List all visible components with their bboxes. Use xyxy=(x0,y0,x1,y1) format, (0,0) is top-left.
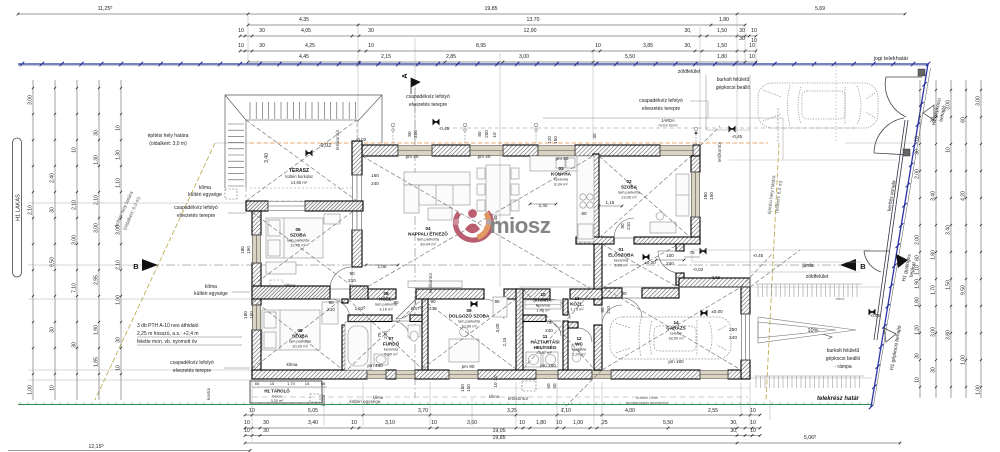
svg-text:pm 40: pm 40 xyxy=(478,154,491,159)
svg-text:elszó: elszó xyxy=(836,297,845,301)
svg-text:miosz: miosz xyxy=(490,213,551,238)
svg-text:240: 240 xyxy=(666,261,674,266)
svg-text:10: 10 xyxy=(915,377,921,383)
svg-text:160: 160 xyxy=(371,173,379,178)
svg-text:2,10: 2,10 xyxy=(94,195,100,205)
svg-text:tetőkontúr: tetőkontúr xyxy=(428,272,433,293)
svg-text:zöldfelület: zöldfelület xyxy=(678,69,701,75)
svg-text:3,10: 3,10 xyxy=(385,420,395,426)
svg-text:1,85: 1,85 xyxy=(94,357,100,367)
svg-text:60: 60 xyxy=(581,211,587,216)
svg-text:10,20 m²: 10,20 m² xyxy=(292,344,308,349)
svg-text:240: 240 xyxy=(383,331,388,339)
svg-text:180: 180 xyxy=(240,246,245,254)
svg-text:3,16 m²: 3,16 m² xyxy=(379,307,393,312)
svg-text:2,15: 2,15 xyxy=(381,54,391,60)
svg-text:210: 210 xyxy=(606,306,611,314)
svg-text:90: 90 xyxy=(600,307,605,313)
svg-text:10: 10 xyxy=(750,428,756,434)
svg-text:210: 210 xyxy=(327,307,335,312)
svg-text:B: B xyxy=(860,262,866,271)
svg-text:12: 12 xyxy=(576,336,582,341)
svg-text:60: 60 xyxy=(546,383,551,389)
svg-text:5,69: 5,69 xyxy=(815,6,825,12)
svg-text:GARÁZS: GARÁZS xyxy=(666,324,685,330)
svg-text:3,85: 3,85 xyxy=(643,43,653,49)
svg-text:60: 60 xyxy=(552,383,557,389)
svg-text:csapadékvíz lefolyó: csapadékvíz lefolyó xyxy=(170,360,214,366)
svg-text:-0,02: -0,02 xyxy=(319,143,332,149)
svg-text:3,40: 3,40 xyxy=(308,420,318,426)
svg-text:gépkocsi beálló: gépkocsi beálló xyxy=(826,356,861,362)
svg-text:1,70: 1,70 xyxy=(287,381,296,386)
svg-text:4,05: 4,05 xyxy=(301,28,311,34)
svg-text:3,00: 3,00 xyxy=(72,235,78,245)
svg-text:2,15: 2,15 xyxy=(502,337,507,346)
svg-text:KÖZL.: KÖZL. xyxy=(379,295,393,301)
svg-text:150: 150 xyxy=(249,311,254,319)
svg-text:30,: 30, xyxy=(684,28,691,34)
svg-text:H1 TÁROLÓ: H1 TÁROLÓ xyxy=(264,389,290,394)
svg-text:2,40: 2,40 xyxy=(50,173,56,183)
svg-text:-0,02: -0,02 xyxy=(356,137,367,142)
svg-text:10: 10 xyxy=(244,428,250,434)
svg-text:3,00: 3,00 xyxy=(519,54,529,60)
svg-text:30: 30 xyxy=(263,420,269,426)
svg-text:elvezetés terepre: elvezetés terepre xyxy=(173,368,212,374)
svg-text:15: 15 xyxy=(305,381,310,386)
svg-text:3,00: 3,00 xyxy=(94,223,100,233)
svg-text:KÖZL.: KÖZL. xyxy=(570,300,584,306)
svg-text:2,10: 2,10 xyxy=(28,205,34,215)
svg-text:12,75 m²: 12,75 m² xyxy=(290,243,306,248)
svg-text:30,: 30, xyxy=(684,43,691,49)
svg-text:1,20: 1,20 xyxy=(915,325,921,335)
svg-text:150: 150 xyxy=(553,136,558,144)
svg-text:30: 30 xyxy=(915,149,921,155)
svg-text:180: 180 xyxy=(703,192,708,200)
svg-text:4,25: 4,25 xyxy=(305,43,315,49)
svg-text:10: 10 xyxy=(368,43,374,49)
svg-text:10: 10 xyxy=(751,28,757,34)
svg-text:csapadékvíz lefolyó: csapadékvíz lefolyó xyxy=(639,98,683,104)
svg-text:pm 90: pm 90 xyxy=(462,364,475,369)
svg-text:JÁRDA: JÁRDA xyxy=(661,118,675,123)
svg-text:építési hely határa: építési hely határa xyxy=(148,133,189,139)
svg-text:2,95: 2,95 xyxy=(94,275,100,285)
svg-text:9,50: 9,50 xyxy=(961,285,967,295)
svg-text:30: 30 xyxy=(50,327,56,333)
svg-text:80: 80 xyxy=(407,131,412,137)
svg-text:10: 10 xyxy=(493,382,498,388)
svg-text:3,40: 3,40 xyxy=(264,153,270,163)
svg-text:90: 90 xyxy=(430,299,436,304)
svg-text:beton: beton xyxy=(272,395,282,399)
svg-text:10: 10 xyxy=(750,408,756,414)
svg-text:4,00: 4,00 xyxy=(625,408,635,414)
svg-text:19,85: 19,85 xyxy=(485,6,498,12)
svg-text:1,80: 1,80 xyxy=(536,420,546,426)
svg-text:A: A xyxy=(402,73,409,78)
svg-text:DOLGOZÓ SZOBA: DOLGOZÓ SZOBA xyxy=(449,311,490,318)
svg-text:±0,00: ±0,00 xyxy=(711,309,723,314)
svg-text:3,00: 3,00 xyxy=(116,225,122,235)
svg-text:(oldalkert: 3,0 m): (oldalkert: 3,0 m) xyxy=(149,141,187,147)
svg-text:240: 240 xyxy=(545,328,553,333)
svg-text:10,80 m²: 10,80 m² xyxy=(461,324,477,329)
svg-text:100: 100 xyxy=(666,253,674,258)
svg-text:07: 07 xyxy=(388,336,394,341)
svg-text:250: 250 xyxy=(729,327,737,333)
svg-text:11,255: 11,255 xyxy=(98,5,113,12)
svg-text:10: 10 xyxy=(50,385,56,391)
svg-text:kontúr: kontúr xyxy=(321,394,326,406)
svg-text:1,80: 1,80 xyxy=(915,297,921,307)
svg-text:19,85: 19,85 xyxy=(493,435,506,441)
svg-text:klíma: klíma xyxy=(489,394,500,399)
svg-text:30: 30 xyxy=(915,353,921,359)
svg-text:180: 180 xyxy=(243,311,248,319)
svg-text:60: 60 xyxy=(961,117,967,123)
svg-text:30,: 30, xyxy=(730,420,737,426)
svg-text:1,00: 1,00 xyxy=(976,385,982,395)
svg-text:tetőkontúr: tetőkontúr xyxy=(335,129,340,150)
svg-text:1,30: 1,30 xyxy=(94,155,100,165)
svg-text:150: 150 xyxy=(246,246,251,254)
svg-text:H1 LAKÁS: H1 LAKÁS xyxy=(15,194,22,221)
svg-text:10: 10 xyxy=(72,147,78,153)
svg-text:150: 150 xyxy=(466,384,471,392)
svg-text:1,30: 1,30 xyxy=(116,150,122,160)
svg-text:90: 90 xyxy=(349,271,355,276)
svg-text:klíma: klíma xyxy=(199,185,211,191)
svg-text:14,65 m²: 14,65 m² xyxy=(291,180,308,185)
svg-text:1,90: 1,90 xyxy=(94,325,100,335)
svg-text:06: 06 xyxy=(297,328,303,333)
svg-text:90: 90 xyxy=(494,299,500,304)
svg-text:- rámpa: - rámpa xyxy=(834,364,851,370)
svg-text:ELŐSZOBA: ELŐSZOBA xyxy=(608,251,634,257)
svg-text:3,00: 3,00 xyxy=(28,95,34,105)
svg-text:12,90: 12,90 xyxy=(524,28,537,34)
svg-text:1,15: 1,15 xyxy=(606,200,615,205)
svg-text:1,00: 1,00 xyxy=(28,385,34,395)
svg-text:150: 150 xyxy=(709,192,714,200)
svg-text:90: 90 xyxy=(393,300,399,305)
svg-text:30: 30 xyxy=(621,291,627,296)
svg-text:12,155: 12,155 xyxy=(88,443,103,450)
svg-text:kültéri egysége: kültéri egysége xyxy=(194,291,228,297)
svg-text:3,70: 3,70 xyxy=(418,408,428,414)
svg-text:30: 30 xyxy=(368,28,374,34)
svg-text:30: 30 xyxy=(739,28,745,34)
svg-text:1,40 m²: 1,40 m² xyxy=(536,308,550,313)
svg-text:10: 10 xyxy=(431,420,437,426)
svg-text:NAPPALI ÉTKEZŐ: NAPPALI ÉTKEZŐ xyxy=(408,229,448,236)
svg-text:75: 75 xyxy=(377,332,382,338)
svg-text:180: 180 xyxy=(460,384,465,392)
svg-text:6,80 m²: 6,80 m² xyxy=(384,352,398,357)
svg-text:09: 09 xyxy=(466,308,472,313)
svg-text:10: 10 xyxy=(351,420,357,426)
svg-text:3,00: 3,00 xyxy=(976,96,982,106)
svg-text:4,45: 4,45 xyxy=(299,54,309,60)
svg-text:HELYISÉG: HELYISÉG xyxy=(534,343,557,350)
svg-text:kontúr: kontúr xyxy=(206,387,211,400)
svg-text:2,25 m hosszú, a.s.: +2,4 m: 2,25 m hosszú, a.s.: +2,4 m xyxy=(137,331,199,337)
svg-text:8,95: 8,95 xyxy=(476,43,486,49)
svg-text:240: 240 xyxy=(371,181,379,186)
svg-text:1,80: 1,80 xyxy=(717,54,727,60)
svg-text:elvezetés terepre: elvezetés terepre xyxy=(177,213,216,219)
svg-text:1,00: 1,00 xyxy=(961,355,967,365)
svg-text:11: 11 xyxy=(543,334,548,339)
svg-text:1,70: 1,70 xyxy=(931,285,937,295)
svg-text:3,00: 3,00 xyxy=(495,323,500,332)
svg-text:10: 10 xyxy=(750,420,756,426)
svg-text:1,50: 1,50 xyxy=(946,280,952,290)
svg-text:10: 10 xyxy=(116,125,122,131)
svg-text:1,50: 1,50 xyxy=(717,28,727,34)
svg-text:klíma: klíma xyxy=(205,284,217,290)
svg-text:1,80: 1,80 xyxy=(931,250,937,260)
svg-text:19,05: 19,05 xyxy=(493,428,506,434)
svg-text:2,00: 2,00 xyxy=(915,169,921,179)
svg-text:05: 05 xyxy=(295,227,301,232)
svg-text:10: 10 xyxy=(915,136,921,142)
svg-text:3,00: 3,00 xyxy=(931,327,937,337)
svg-text:1,00: 1,00 xyxy=(573,420,583,426)
svg-text:210: 210 xyxy=(626,222,631,230)
svg-text:30: 30 xyxy=(493,375,498,381)
svg-text:1,80: 1,80 xyxy=(719,17,729,23)
svg-text:burkolt felületű: burkolt felületű xyxy=(717,77,750,83)
svg-text:4,35: 4,35 xyxy=(299,17,309,23)
svg-text:járda: járda xyxy=(801,263,813,269)
svg-text:08: 08 xyxy=(383,291,389,296)
svg-text:240: 240 xyxy=(729,335,737,341)
svg-text:2,55: 2,55 xyxy=(708,408,718,414)
svg-text:10: 10 xyxy=(238,43,244,49)
svg-text:30: 30 xyxy=(116,337,122,343)
svg-text:1,00: 1,00 xyxy=(116,295,122,305)
svg-text:zöldfelület: zöldfelület xyxy=(806,274,829,280)
svg-text:10: 10 xyxy=(749,54,755,60)
svg-text:10: 10 xyxy=(244,420,250,426)
svg-text:kültéri burkolat: kültéri burkolat xyxy=(285,174,313,179)
svg-text:15: 15 xyxy=(270,381,275,386)
svg-text:13,06 m²: 13,06 m² xyxy=(621,195,637,200)
svg-text:1,90: 1,90 xyxy=(915,279,921,289)
svg-text:02: 02 xyxy=(626,179,632,184)
svg-text:30: 30 xyxy=(259,43,265,49)
svg-text:-0,45: -0,45 xyxy=(753,253,764,258)
svg-text:10: 10 xyxy=(492,132,497,138)
svg-text:3,40: 3,40 xyxy=(931,191,937,201)
svg-text:-0,45: -0,45 xyxy=(439,126,450,131)
svg-text:13: 13 xyxy=(574,296,580,301)
svg-text:FÜRDŐ: FÜRDŐ xyxy=(383,340,400,346)
svg-text:2,85: 2,85 xyxy=(446,54,456,60)
svg-text:03: 03 xyxy=(558,166,564,171)
svg-text:39,04 m²: 39,04 m² xyxy=(420,242,436,247)
svg-text:8,34 m²: 8,34 m² xyxy=(554,182,568,187)
svg-text:kondenzációs kombicirkó: kondenzációs kombicirkó xyxy=(626,401,668,405)
svg-text:210: 210 xyxy=(348,278,356,283)
svg-text:90: 90 xyxy=(328,300,334,305)
svg-text:30,: 30, xyxy=(730,428,737,434)
svg-text:pm 180: pm 180 xyxy=(540,363,556,368)
svg-text:gépkocsi beálló: gépkocsi beálló xyxy=(716,85,751,91)
svg-text:klíma: klíma xyxy=(285,283,296,288)
svg-text:klíma: klíma xyxy=(287,362,298,367)
svg-text:5,99 m²: 5,99 m² xyxy=(614,263,628,268)
svg-text:3,40: 3,40 xyxy=(946,225,952,235)
svg-text:3,80: 3,80 xyxy=(946,330,952,340)
svg-text:60: 60 xyxy=(321,381,326,386)
svg-text:9,50: 9,50 xyxy=(50,257,56,267)
svg-text:3,20 m²: 3,20 m² xyxy=(271,399,285,403)
svg-text:Artisan Cérel: Artisan Cérel xyxy=(636,396,658,400)
svg-text:04: 04 xyxy=(425,226,431,231)
svg-text:200: 200 xyxy=(484,130,489,138)
svg-text:30: 30 xyxy=(72,342,78,348)
svg-text:2,55: 2,55 xyxy=(712,275,721,280)
svg-text:210: 210 xyxy=(429,306,437,311)
svg-text:,25: ,25 xyxy=(600,420,607,426)
svg-text:80: 80 xyxy=(477,131,482,137)
svg-text:30: 30 xyxy=(739,36,745,42)
svg-text:4,20: 4,20 xyxy=(961,191,967,201)
svg-text:kültéri egysége: kültéri egysége xyxy=(188,192,222,198)
svg-text:65: 65 xyxy=(255,381,260,386)
svg-text:pm 90: pm 90 xyxy=(556,156,569,161)
svg-text:telekrész határ: telekrész határ xyxy=(817,396,860,402)
svg-text:1,70 m²: 1,70 m² xyxy=(570,307,584,312)
svg-text:60: 60 xyxy=(915,255,921,261)
svg-text:burkolt felületű: burkolt felületű xyxy=(827,348,860,354)
svg-text:5,50: 5,50 xyxy=(663,420,673,426)
svg-text:3,87 m²: 3,87 m² xyxy=(538,350,552,355)
svg-text:elvezetés terepre: elvezetés terepre xyxy=(409,102,448,108)
svg-text:30: 30 xyxy=(50,207,56,213)
svg-text:3,25: 3,25 xyxy=(507,408,517,414)
svg-text:-0,02: -0,02 xyxy=(693,267,704,272)
svg-text:3 db PTH A-10 neo áthidaló: 3 db PTH A-10 neo áthidaló xyxy=(137,323,199,329)
svg-text:10: 10 xyxy=(946,147,952,153)
svg-text:csapadékvíz lefolyó: csapadékvíz lefolyó xyxy=(174,205,218,211)
svg-text:klíma: klíma xyxy=(373,395,384,400)
svg-text:10: 10 xyxy=(749,43,755,49)
svg-text:30: 30 xyxy=(592,133,597,139)
svg-text:elvezetés terepre: elvezetés terepre xyxy=(642,106,681,112)
svg-text:90: 90 xyxy=(620,223,625,229)
svg-text:tetőkontúr: tetőkontúr xyxy=(717,141,722,162)
svg-text:2,10: 2,10 xyxy=(72,200,78,210)
svg-text:beton térkő: beton térkő xyxy=(659,124,678,128)
svg-text:pm 40: pm 40 xyxy=(406,154,419,159)
svg-text:B: B xyxy=(133,262,139,271)
svg-text:30: 30 xyxy=(94,130,100,136)
svg-text:5,50: 5,50 xyxy=(625,54,635,60)
svg-text:1,10: 1,10 xyxy=(116,178,122,188)
svg-text:1,20 m²: 1,20 m² xyxy=(572,352,586,357)
svg-text:18,59 m²: 18,59 m² xyxy=(668,336,684,341)
svg-text:10: 10 xyxy=(595,43,601,49)
svg-text:30: 30 xyxy=(259,28,265,34)
svg-text:jogi telekhatár: jogi telekhatár xyxy=(873,56,909,62)
svg-text:10: 10 xyxy=(519,420,525,426)
svg-text:pm 180: pm 180 xyxy=(668,359,684,364)
svg-text:10%: 10% xyxy=(807,328,818,334)
svg-text:±0,00: ±0,00 xyxy=(644,260,656,265)
svg-text:14: 14 xyxy=(673,320,679,325)
svg-text:10: 10 xyxy=(238,28,244,34)
svg-text:pm 480: pm 480 xyxy=(367,363,383,368)
svg-text:120: 120 xyxy=(547,136,552,144)
svg-text:csapadékvíz lefolyó: csapadékvíz lefolyó xyxy=(406,94,450,100)
svg-text:2,00: 2,00 xyxy=(915,235,921,245)
svg-text:30: 30 xyxy=(931,367,937,373)
svg-text:30: 30 xyxy=(263,428,269,434)
svg-text:felette mon. vb. nyomott öv: felette mon. vb. nyomott öv xyxy=(137,339,198,345)
svg-text:10: 10 xyxy=(540,292,546,297)
svg-text:75: 75 xyxy=(546,320,552,325)
svg-text:13,70: 13,70 xyxy=(527,17,540,23)
svg-text:1,10: 1,10 xyxy=(561,408,571,414)
svg-text:HÁZTARTÁSI: HÁZTARTÁSI xyxy=(530,338,559,344)
svg-text:5,05: 5,05 xyxy=(308,408,318,414)
svg-text:7,10: 7,10 xyxy=(72,283,78,293)
svg-text:1,50: 1,50 xyxy=(717,43,727,49)
svg-text:200: 200 xyxy=(413,130,418,138)
svg-text:01: 01 xyxy=(618,247,624,252)
svg-text:-0,45: -0,45 xyxy=(732,134,743,139)
